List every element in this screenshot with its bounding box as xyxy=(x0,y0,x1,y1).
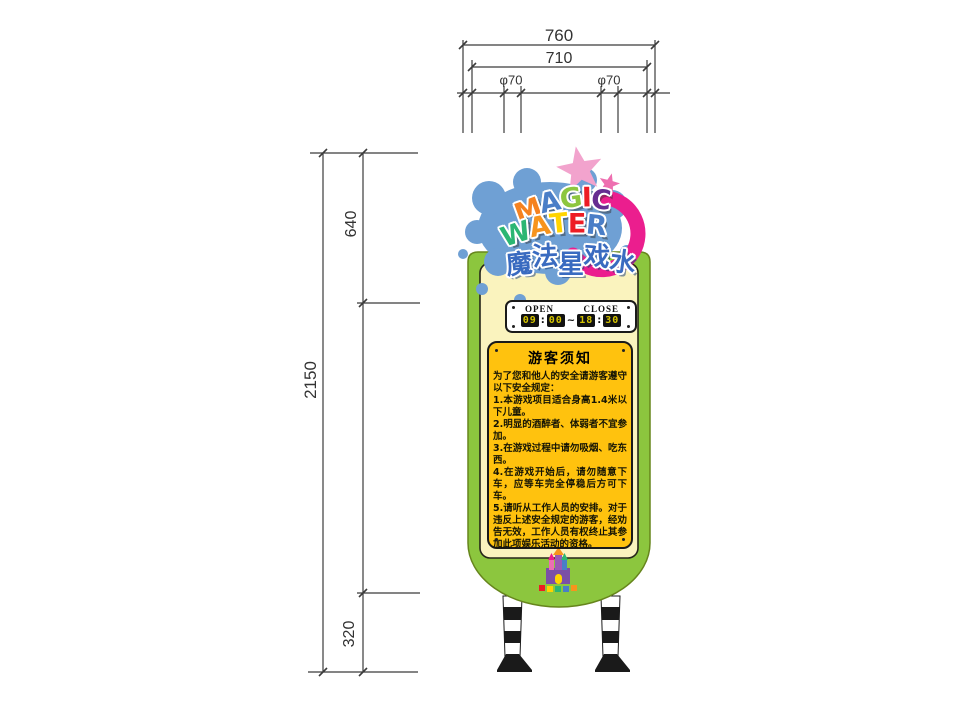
tilde-separator: ~ xyxy=(567,314,575,327)
dim-label-inner-width: 710 xyxy=(546,50,573,68)
notice-intro: 为了您和他人的安全请游客遵守以下安全规定： xyxy=(493,371,627,395)
logo-letter: E xyxy=(568,208,586,239)
close-label: CLOSE xyxy=(583,304,619,314)
notice-rule: 2.明显的酒醉者、体弱者不宜参加。 xyxy=(493,419,627,443)
dim-label-pole-left: φ70 xyxy=(500,73,523,88)
leg-left xyxy=(502,595,523,658)
open-minute-display: 00 xyxy=(547,314,565,327)
dim-label-lower-height: 320 xyxy=(341,621,359,648)
close-minute-display: 30 xyxy=(603,314,621,327)
logo-cn-char: 魔 xyxy=(504,243,534,283)
notice-rule: 5.请听从工作人员的安排。对于违反上述安全规定的游客，经劝告无效，工作人员有权终… xyxy=(493,503,627,551)
logo-cn-char: 戏 xyxy=(583,235,612,274)
notice-rule: 3.在游戏过程中请勿吸烟、吃东西。 xyxy=(493,443,627,467)
foot-right xyxy=(595,654,630,672)
logo-title-chinese: 魔法星戏水 xyxy=(506,238,636,275)
notice-body: 为了您和他人的安全请游客遵守以下安全规定： 1.本游戏项目适合身高1.4米以下儿… xyxy=(493,371,627,551)
hours-panel: OPEN CLOSE 09 : 00 ~ 18 : 30 xyxy=(505,300,637,333)
dim-label-pole-right: φ70 xyxy=(598,73,621,88)
drawing-shapes xyxy=(0,0,960,720)
dimension-lines-side xyxy=(308,153,420,672)
notice-rules: 1.本游戏项目适合身高1.4米以下儿童。2.明显的酒醉者、体弱者不宜参加。3.在… xyxy=(493,395,627,551)
screw-icon xyxy=(512,325,515,328)
dim-label-upper-height: 640 xyxy=(343,211,361,238)
screw-icon xyxy=(495,538,498,541)
leg-right xyxy=(600,595,621,658)
signage-drawing-page: 760 710 φ70 φ70 2150 640 320 MAGIC WATER… xyxy=(0,0,960,720)
notice-title: 游客须知 xyxy=(489,348,631,368)
colon-separator: : xyxy=(597,314,601,327)
visitor-notice-panel: 游客须知 为了您和他人的安全请游客遵守以下安全规定： 1.本游戏项目适合身高1.… xyxy=(487,341,633,549)
logo-cn-char: 法 xyxy=(531,235,559,273)
screw-icon xyxy=(627,306,630,309)
logo-cn-char: 星 xyxy=(558,244,584,281)
dim-label-total-height: 2150 xyxy=(301,361,321,399)
dim-label-overall-width: 760 xyxy=(545,26,573,46)
open-label: OPEN xyxy=(525,304,554,314)
screw-icon xyxy=(627,325,630,328)
notice-rule: 4.在游戏开始后，请勿随意下车，应等车完全停稳后方可下车。 xyxy=(493,467,627,503)
colon-separator: : xyxy=(541,314,545,327)
logo-cn-char: 水 xyxy=(608,240,639,280)
screw-icon xyxy=(512,306,515,309)
screw-icon xyxy=(622,538,625,541)
close-hour-display: 18 xyxy=(577,314,595,327)
screw-icon xyxy=(495,349,498,352)
open-hour-display: 09 xyxy=(521,314,539,327)
foot-left xyxy=(497,654,532,672)
screw-icon xyxy=(622,349,625,352)
notice-rule: 1.本游戏项目适合身高1.4米以下儿童。 xyxy=(493,395,627,419)
